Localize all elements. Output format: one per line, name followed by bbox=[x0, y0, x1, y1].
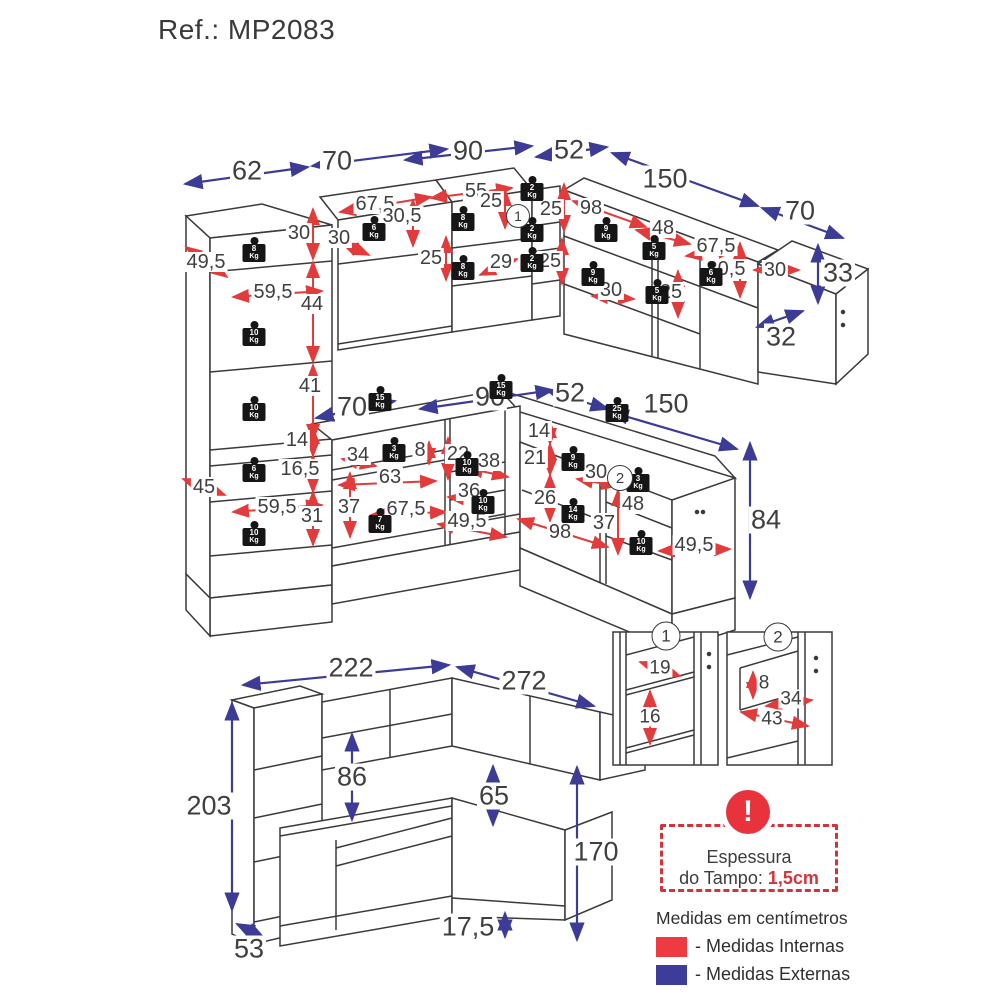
dimension-label: 25 bbox=[478, 191, 504, 211]
dimension-label: 14 bbox=[284, 430, 310, 450]
dimension-label: 63 bbox=[377, 467, 403, 487]
dimension-label: 37 bbox=[591, 513, 617, 533]
max-load-weight-icon: 5Kg bbox=[646, 286, 669, 304]
max-load-weight-icon: 3Kg bbox=[383, 444, 406, 462]
dimension-label: 49,5 bbox=[446, 511, 489, 531]
dimension-label: 31 bbox=[299, 506, 325, 526]
dimension-label: 21 bbox=[522, 448, 548, 468]
max-load-weight-icon: 10Kg bbox=[243, 403, 266, 421]
legend-external-label: - Medidas Externas bbox=[695, 964, 850, 985]
detail-marker-2: 2 bbox=[607, 465, 633, 491]
max-load-weight-icon: 15Kg bbox=[490, 381, 513, 399]
top-thickness-warning-box: Espessura do Tampo: 1,5cm bbox=[660, 824, 838, 892]
dimension-label: 222 bbox=[326, 655, 375, 682]
max-load-weight-icon: 15Kg bbox=[369, 393, 392, 411]
dimension-label: 53 bbox=[232, 936, 266, 963]
dimension-label: 170 bbox=[571, 839, 620, 866]
max-load-weight-icon: 8Kg bbox=[243, 244, 266, 262]
dimension-label: 52 bbox=[552, 137, 586, 164]
dimension-label: 16,5 bbox=[279, 459, 322, 479]
dimension-label: 41 bbox=[297, 376, 323, 396]
dimension-label: 272 bbox=[499, 668, 548, 695]
dimension-label: 34 bbox=[778, 690, 803, 709]
dimension-label: 34 bbox=[345, 445, 371, 465]
dimension-label: 70 bbox=[783, 198, 817, 225]
dimension-label: 150 bbox=[641, 391, 690, 418]
max-load-weight-icon: 5Kg bbox=[643, 242, 666, 260]
max-load-weight-icon: 6Kg bbox=[700, 268, 723, 286]
max-load-weight-icon: 10Kg bbox=[243, 328, 266, 346]
dimension-label: 44 bbox=[299, 294, 325, 314]
dimension-label: 8 bbox=[412, 440, 427, 460]
dimension-label: 59,5 bbox=[256, 497, 299, 517]
max-load-weight-icon: 7Kg bbox=[369, 515, 392, 533]
assembly-diagram-page: Ref.: MP2083 bbox=[0, 0, 1000, 1000]
legend-internal-label: - Medidas Internas bbox=[695, 936, 844, 957]
warning-line2: do Tampo: 1,5cm bbox=[663, 868, 835, 889]
dimension-label: 98 bbox=[547, 522, 573, 542]
thickness-value: 1,5cm bbox=[768, 868, 819, 888]
dimension-label: 59,5 bbox=[252, 282, 295, 302]
dimension-label: 19 bbox=[647, 659, 672, 678]
dimension-label: 30,5 bbox=[381, 206, 424, 226]
max-load-weight-icon: 10Kg bbox=[472, 496, 495, 514]
dimension-label: 25 bbox=[538, 199, 564, 219]
dimension-label: 203 bbox=[184, 793, 233, 820]
warning-exclamation-icon: ! bbox=[726, 790, 770, 834]
dimension-label: 65 bbox=[477, 783, 511, 810]
dimension-label: 16 bbox=[637, 708, 662, 727]
dimension-label: 48 bbox=[620, 494, 646, 514]
dimension-label: 70 bbox=[335, 394, 369, 421]
dimension-label: 26 bbox=[532, 488, 558, 508]
max-load-weight-icon: 10Kg bbox=[630, 537, 653, 555]
dimension-label: 14 bbox=[526, 421, 552, 441]
dimension-label: 62 bbox=[230, 158, 264, 185]
detail-marker-2: 2 bbox=[764, 623, 793, 652]
legend-external-swatch bbox=[656, 965, 687, 985]
dimension-label: 43 bbox=[759, 710, 784, 729]
max-load-weight-icon: 9Kg bbox=[562, 453, 585, 471]
warning-line1: Espessura bbox=[663, 847, 835, 868]
dimension-label: 38 bbox=[476, 451, 502, 471]
dimension-label: 37 bbox=[336, 497, 362, 517]
dimension-label: 30 bbox=[583, 462, 609, 482]
dimension-label: 84 bbox=[749, 507, 783, 534]
dimension-label: 90 bbox=[451, 138, 485, 165]
max-load-weight-icon: 9Kg bbox=[595, 224, 618, 242]
dimension-label: 49,5 bbox=[185, 252, 228, 272]
max-load-weight-icon: 2Kg bbox=[521, 224, 544, 242]
dimension-label: 45 bbox=[191, 477, 217, 497]
max-load-weight-icon: 8Kg bbox=[452, 262, 475, 280]
max-load-weight-icon: 2Kg bbox=[521, 254, 544, 272]
dimension-label: 86 bbox=[335, 764, 369, 791]
dimension-label: 25 bbox=[418, 248, 444, 268]
dimension-label: 70 bbox=[320, 148, 354, 175]
max-load-weight-icon: 9Kg bbox=[582, 268, 605, 286]
dimension-label: 30 bbox=[762, 260, 788, 280]
dimension-label: 98 bbox=[578, 198, 604, 218]
detail-marker-1: 1 bbox=[506, 204, 530, 228]
overview-drawing bbox=[232, 678, 645, 946]
diagram-line-art bbox=[0, 0, 1000, 1000]
units-note: Medidas em centímetros bbox=[656, 908, 848, 929]
max-load-weight-icon: 10Kg bbox=[243, 528, 266, 546]
legend-internal-row: - Medidas Internas bbox=[656, 936, 844, 957]
dimension-label: 30 bbox=[286, 223, 312, 243]
max-load-weight-icon: 6Kg bbox=[363, 223, 386, 241]
legend-internal-swatch bbox=[656, 937, 687, 957]
max-load-weight-icon: 10Kg bbox=[456, 458, 479, 476]
max-load-weight-icon: 25Kg bbox=[606, 404, 629, 422]
dimension-label: 29 bbox=[488, 252, 514, 272]
dimension-label: 17,5 bbox=[440, 914, 497, 941]
dimension-label: 67,5 bbox=[695, 236, 738, 256]
dimension-label: 52 bbox=[553, 380, 587, 407]
max-load-weight-icon: 8Kg bbox=[452, 213, 475, 231]
detail-marker-1: 1 bbox=[652, 622, 681, 651]
dimension-label: 32 bbox=[764, 324, 798, 351]
dimension-label: 49,5 bbox=[673, 535, 716, 555]
legend-external-row: - Medidas Externas bbox=[656, 964, 850, 985]
dimension-label: 8 bbox=[757, 674, 772, 693]
dimension-label: 150 bbox=[640, 166, 689, 193]
max-load-weight-icon: 14Kg bbox=[562, 505, 585, 523]
dimension-label: 30 bbox=[326, 228, 352, 248]
max-load-weight-icon: 6Kg bbox=[243, 464, 266, 482]
max-load-weight-icon: 2Kg bbox=[521, 183, 544, 201]
dimension-label: 33 bbox=[821, 260, 855, 287]
